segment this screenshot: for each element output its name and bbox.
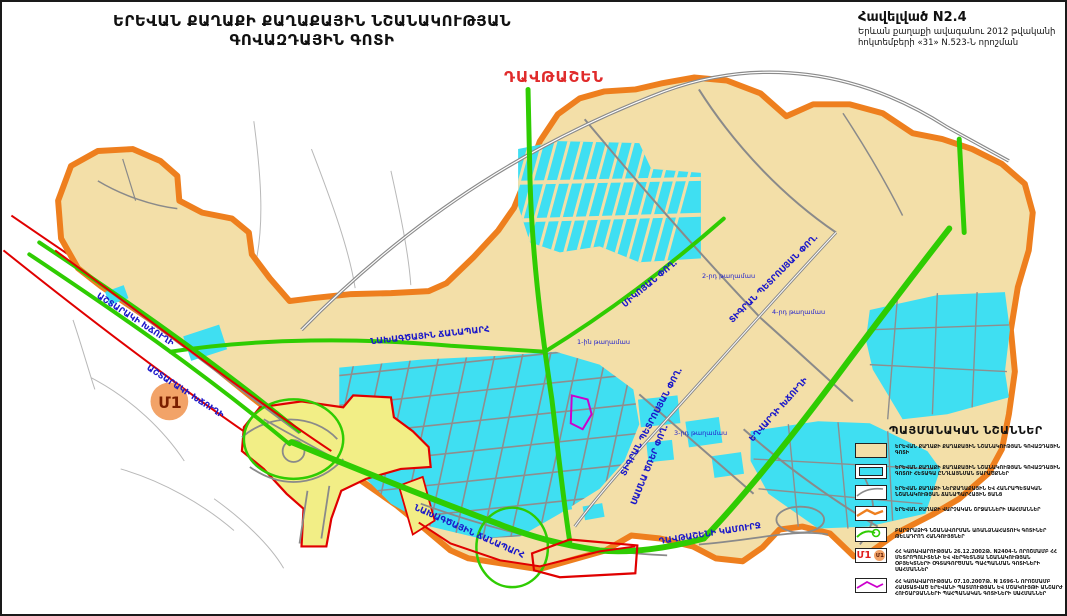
legend-metro-glyph: Մ1 bbox=[857, 551, 872, 561]
legend-swatch-expansion-icon bbox=[855, 464, 889, 480]
quarter-label-1: 1-ին թաղամաս bbox=[577, 338, 630, 346]
legend-row-advertising-zone: ԵՐԵՎԱՆ ՔԱՂԱՔԻ ՔԱՂԱՔԱՅԻՆ ՆՇԱՆԱԿՈՒԹՅԱՆ ԳՈՎ… bbox=[855, 443, 1063, 459]
annex-decision-line2: հոկտեմբերի «31» N.523-Ն որոշման bbox=[858, 38, 1058, 49]
legend-row-district-borders: ԵՐԵՎԱՆ ՔԱՂԱՔԻ ՎԱՐՉԱԿԱՆ ՇՐՋԱՆՆԵՐԻ ՍԱՀՄԱՆՆ… bbox=[855, 506, 1063, 522]
legend-item-label: ՀՀ ԿԱՌԱՎԱՐՈՒԹՅԱՆ 26.12.2002Թ. N2404-Ն ՈՐ… bbox=[895, 548, 1063, 573]
map-sheet: ԵՐԵՎԱՆ ՔԱՂԱՔԻ ՔԱՂԱՔԱՅԻՆ ՆՇԱՆԱԿՈՒԹՅԱՆ ԳՈՎ… bbox=[0, 0, 1067, 616]
legend-metro-circle-icon: Մ1 bbox=[874, 550, 885, 561]
legend-row-road-network: ԵՐԵՎԱՆ ՔԱՂԱՔԻ ՆԵՐՔԱՂԱՔԱՅԻՆ ԵՎ ՀԱՆՐԱՊԵՏԱԿ… bbox=[855, 485, 1063, 501]
legend-item-label: ԵՐԵՎԱՆ ՔԱՂԱՔԻ ՎԱՐՉԱԿԱՆ ՇՐՋԱՆՆԵՐԻ ՍԱՀՄԱՆՆ… bbox=[895, 506, 1040, 513]
annex-number: Հավելված N2.4 bbox=[858, 10, 1058, 25]
legend-swatch-road-icon bbox=[855, 485, 889, 501]
legend-item-label: ԵՐԵՎԱՆ ՔԱՂԱՔԻ ՔԱՂԱՔԱՅԻՆ ՆՇԱՆԱԿՈՒԹՅԱՆ ԳՈՎ… bbox=[895, 443, 1063, 456]
legend-swatch-highrise-icon bbox=[855, 527, 889, 543]
legend-header: ՊԱՅՄԱՆԱԿԱՆ ՆՇԱՆՆԵՐ bbox=[889, 424, 1063, 437]
legend-row-metro-protection: Մ1 Մ1 ՀՀ ԿԱՌԱՎԱՐՈՒԹՅԱՆ 26.12.2002Թ. N240… bbox=[855, 548, 1063, 573]
district-name-label: ԴԱՎԹԱՇԵՆ bbox=[494, 68, 614, 86]
legend-item-label: ԵՐԵՎԱՆ ՔԱՂԱՔԻ ՆԵՐՔԱՂԱՔԱՅԻՆ ԵՎ ՀԱՆՐԱՊԵՏԱԿ… bbox=[895, 485, 1063, 498]
legend-item-label: ՀՀ ԿԱՌԱՎԱՐՈՒԹՅԱՆ 07.10.2007Թ. N 1696-Ն Ո… bbox=[895, 578, 1063, 597]
quarter-label-3: 3-րդ թաղամաս bbox=[674, 429, 727, 437]
quarter-label-4: 4-րդ թաղամաս bbox=[772, 308, 825, 316]
legend-swatch-border-icon bbox=[855, 506, 889, 522]
quarter-label-2: 2-րդ թաղամաս bbox=[702, 272, 755, 280]
page-title: ԵՐԵՎԱՆ ՔԱՂԱՔԻ ՔԱՂԱՔԱՅԻՆ ՆՇԱՆԱԿՈՒԹՅԱՆ ԳՈՎ… bbox=[112, 12, 512, 50]
annex-decision-line1: Երևան քաղաքի ավագանու 2012 թվականի bbox=[858, 27, 1058, 38]
page-title-line1: ԵՐԵՎԱՆ ՔԱՂԱՔԻ ՔԱՂԱՔԱՅԻՆ ՆՇԱՆԱԿՈՒԹՅԱՆ bbox=[112, 12, 512, 31]
annex-note: Հավելված N2.4 Երևան քաղաքի ավագանու 2012… bbox=[858, 10, 1058, 48]
legend-item-label: ԲԱՐՁՐԱՁԻԳ ՆՇԱՆԱՎՈՐՄԱՆ ԱՌԱՆՁՆԱՀԱՏՈՒԿ ԳՈՏԻ… bbox=[895, 527, 1063, 540]
legend-swatch-zone-icon bbox=[855, 443, 889, 459]
legend: ՊԱՅՄԱՆԱԿԱՆ ՆՇԱՆՆԵՐ ԵՐԵՎԱՆ ՔԱՂԱՔԻ ՔԱՂԱՔԱՅ… bbox=[855, 424, 1063, 602]
legend-swatch-metro-icon: Մ1 Մ1 bbox=[855, 548, 889, 564]
legend-item-label: ԵՐԵՎԱՆ ՔԱՂԱՔԻ ՔԱՂԱՔԱՅԻՆ ՆՇԱՆԱԿՈՒԹՅԱՆ ԳՈՎ… bbox=[895, 464, 1063, 477]
legend-swatch-monument-icon bbox=[855, 578, 889, 594]
page-title-line2: ԳՈՎԱԶԴԱՅԻՆ ԳՈՏԻ bbox=[112, 31, 512, 50]
legend-row-monument-zones: ՀՀ ԿԱՌԱՎԱՐՈՒԹՅԱՆ 07.10.2007Թ. N 1696-Ն Ո… bbox=[855, 578, 1063, 597]
legend-row-highrise-nodes: ԲԱՐՁՐԱՁԻԳ ՆՇԱՆԱՎՈՐՄԱՆ ԱՌԱՆՁՆԱՀԱՏՈՒԿ ԳՈՏԻ… bbox=[855, 527, 1063, 543]
legend-row-expansion-areas: ԵՐԵՎԱՆ ՔԱՂԱՔԻ ՔԱՂԱՔԱՅԻՆ ՆՇԱՆԱԿՈՒԹՅԱՆ ԳՈՎ… bbox=[855, 464, 1063, 480]
